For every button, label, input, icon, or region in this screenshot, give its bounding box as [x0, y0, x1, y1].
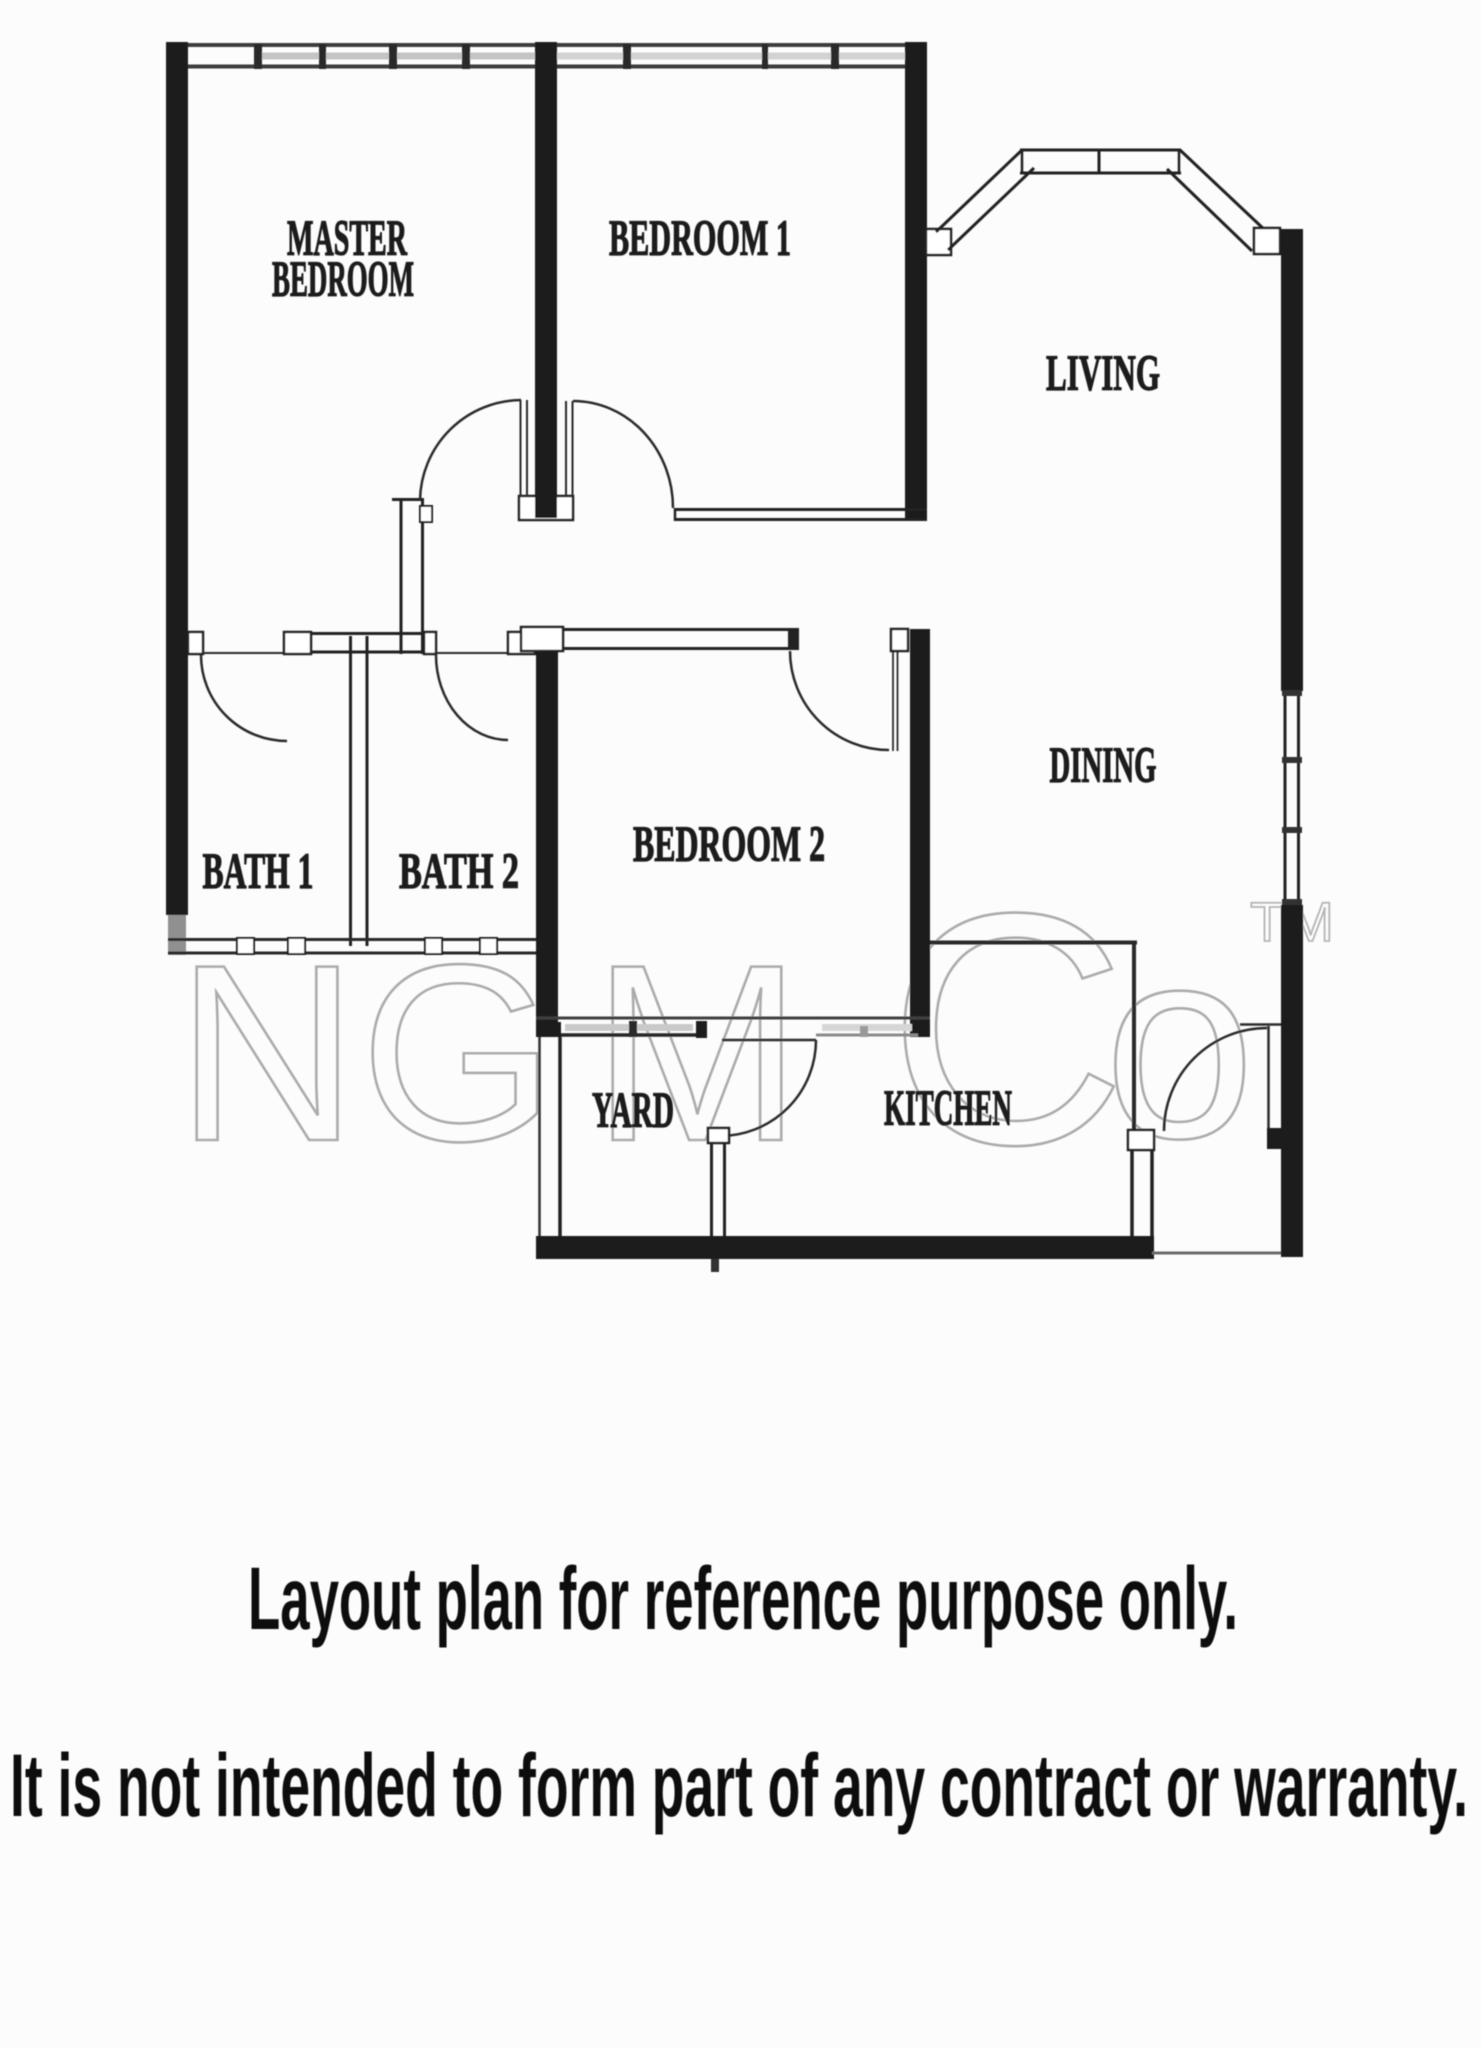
svg-text:N: N: [176, 913, 358, 1194]
svg-text:Layout plan for reference purp: Layout plan for reference purpose only.: [248, 1548, 1238, 1648]
svg-text:It is not intended to form par: It is not intended to form part of any c…: [10, 1735, 1468, 1835]
svg-text:KITCHEN: KITCHEN: [884, 1081, 1012, 1137]
svg-text:BEDROOM 1: BEDROOM 1: [609, 211, 791, 267]
svg-text:DINING: DINING: [1050, 738, 1157, 794]
svg-text:o: o: [1104, 891, 1255, 1195]
svg-text:YARD: YARD: [592, 1083, 674, 1139]
svg-text:M: M: [592, 913, 802, 1194]
svg-text:G: G: [360, 913, 556, 1194]
svg-text:BATH 1: BATH 1: [203, 844, 314, 900]
svg-text:BATH 2: BATH 2: [399, 844, 519, 900]
svg-text:BEDROOM 2: BEDROOM 2: [633, 817, 825, 873]
svg-text:BEDROOM: BEDROOM: [272, 252, 414, 308]
svg-text:LIVING: LIVING: [1046, 346, 1160, 402]
